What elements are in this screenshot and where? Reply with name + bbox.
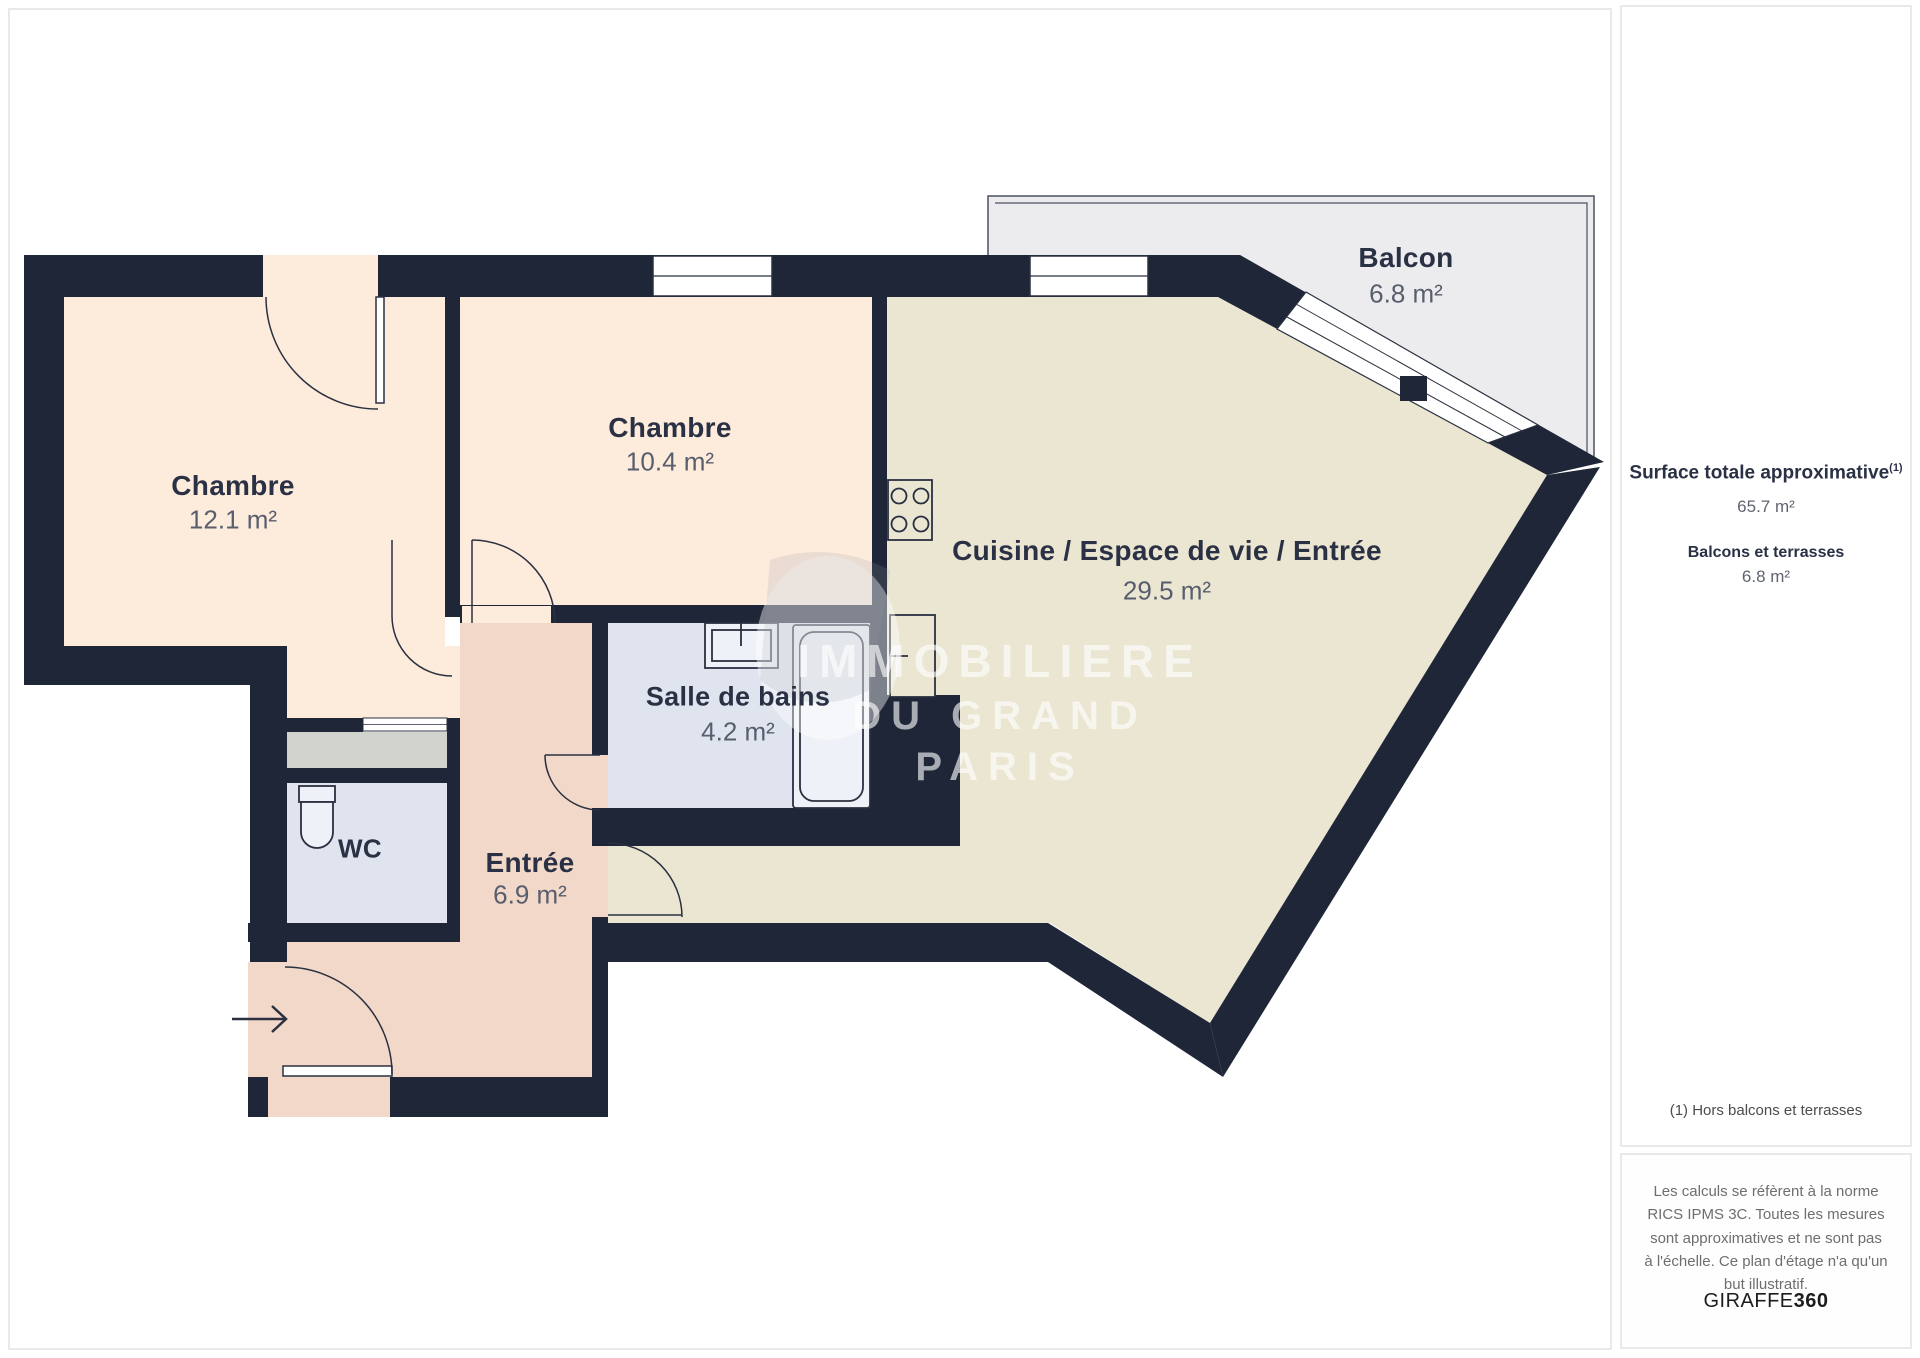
balconies-title: Balcons et terrasses (1620, 544, 1912, 562)
disclaimer-text: Les calculs se réfèrent à la norme RICS … (1644, 1180, 1888, 1296)
page: IMMOBILIERE DU GRAND PARIS Chambre 12.1 … (0, 0, 1920, 1358)
surface-total-title: Surface totale approximative(1) (1620, 462, 1912, 484)
room-label-wc: WC (338, 834, 382, 865)
room-area-chambre-2: 10.4 m² (626, 447, 714, 478)
footnote-ref: (1) (1889, 462, 1902, 474)
giraffe360-logo: GIRAFFE360 (1620, 1290, 1912, 1313)
balconies-value: 6.8 m² (1620, 567, 1912, 587)
stove-icon (888, 480, 932, 540)
room-label-living: Cuisine / Espace de vie / Entrée (952, 535, 1382, 567)
window (653, 256, 772, 296)
closet-sliding-door (363, 718, 447, 731)
room-label-hall: Entrée (486, 847, 575, 879)
room-area-bathroom: 4.2 m² (701, 717, 775, 748)
closet-floor (287, 732, 447, 768)
room-area-living: 29.5 m² (1123, 576, 1211, 607)
toilet-icon (299, 786, 335, 848)
room-area-chambre-1: 12.1 m² (189, 505, 277, 536)
room-label-chambre-2: Chambre (608, 412, 731, 444)
room-label-balcony: Balcon (1358, 242, 1453, 274)
room-area-balcony: 6.8 m² (1369, 279, 1443, 310)
room-label-bathroom: Salle de bains (646, 682, 830, 713)
room-area-hall: 6.9 m² (493, 880, 567, 911)
footnote: (1) Hors balcons et terrasses (1620, 1102, 1912, 1119)
window (1030, 256, 1148, 296)
room-label-chambre-1: Chambre (171, 470, 294, 502)
surface-total-value: 65.7 m² (1620, 497, 1912, 517)
